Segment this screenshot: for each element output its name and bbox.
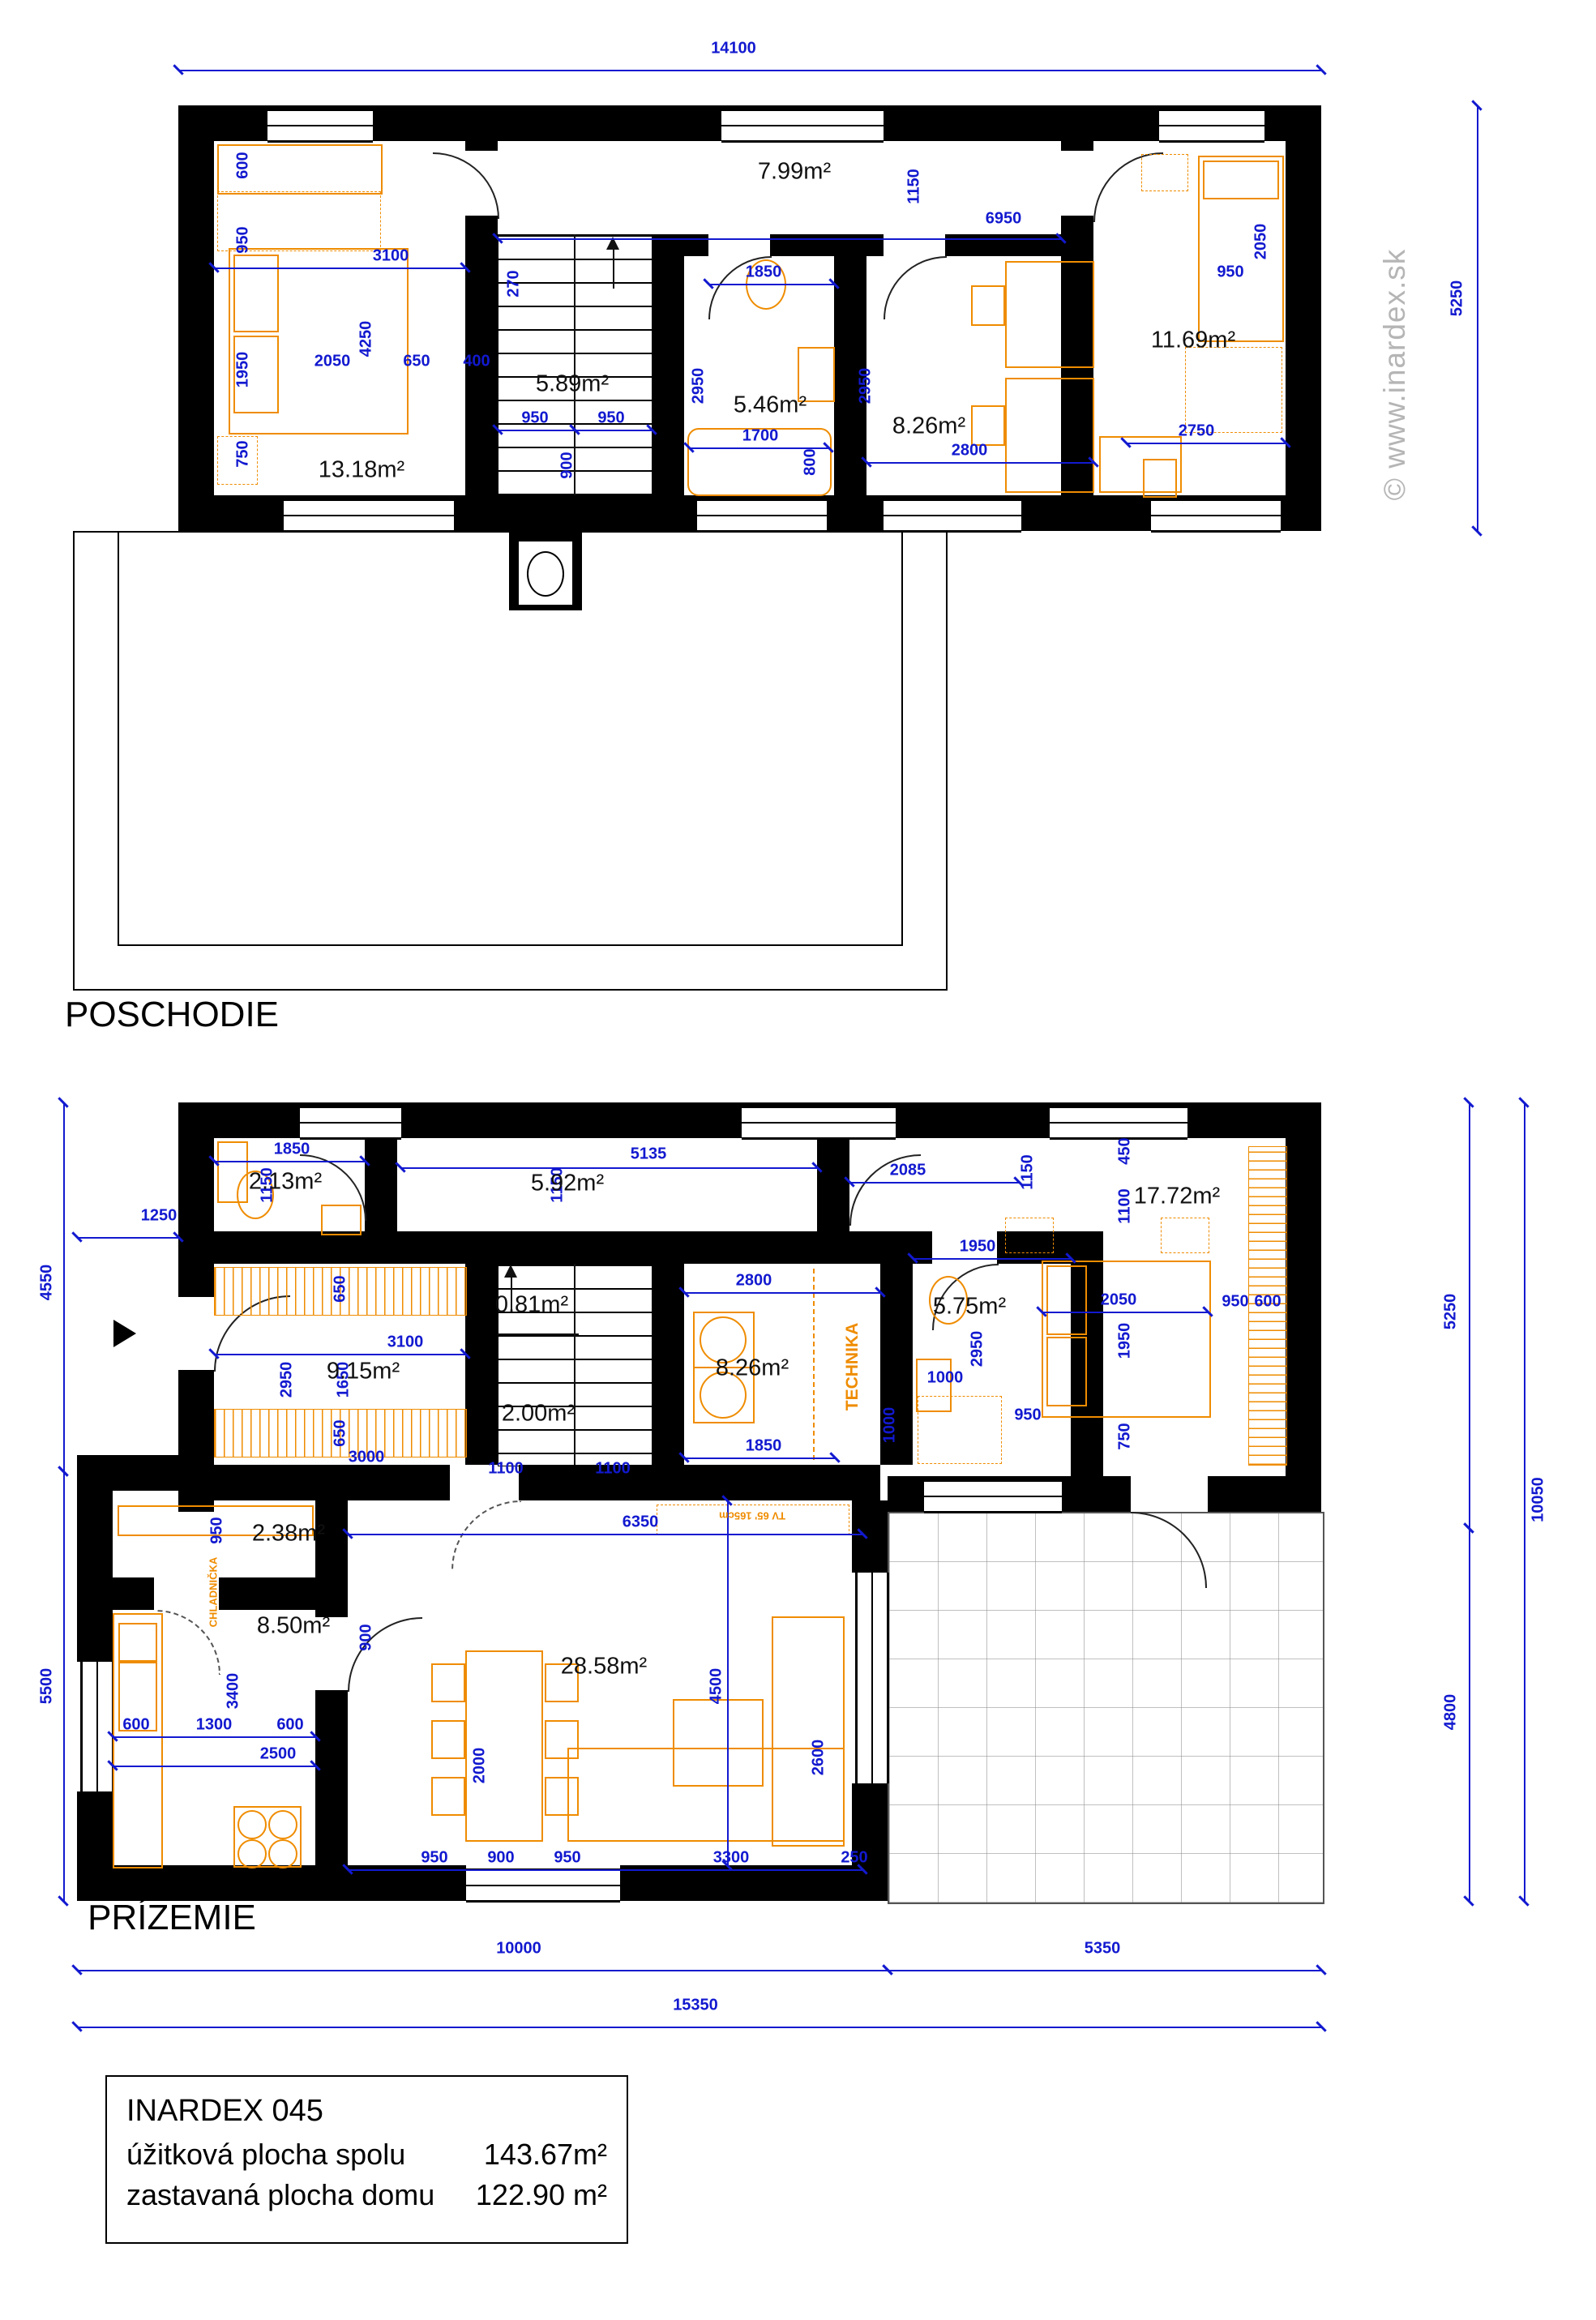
dimension-label: 600 (234, 152, 253, 178)
dimension-label: 900 (558, 452, 577, 478)
dimension-line (63, 1102, 65, 1471)
dimension-label: 950 (597, 409, 624, 428)
dimension-label: 1000 (881, 1407, 900, 1444)
wall (113, 1577, 154, 1610)
dimension-label: 1100 (488, 1460, 523, 1479)
furniture (673, 1699, 764, 1787)
window (742, 1106, 896, 1140)
room-area-label: 8.26m² (716, 1355, 789, 1382)
furniture (1143, 459, 1177, 498)
dimension-label: 6350 (623, 1513, 659, 1532)
dimension-label: 3100 (387, 1333, 424, 1352)
dimension-label: 1850 (746, 1437, 782, 1456)
dimension-label: 3300 (713, 1849, 750, 1868)
dimension-label: 1150 (1019, 1154, 1038, 1189)
dimension-line (1524, 1102, 1525, 1901)
dimension-line (684, 1457, 835, 1459)
furniture (431, 1777, 465, 1816)
furniture (465, 1650, 543, 1842)
room-area-label: 8.26m² (892, 413, 965, 440)
dimension-label: 600 (1254, 1293, 1281, 1312)
dimension-label: 950 (554, 1849, 580, 1868)
window (466, 1868, 620, 1903)
dimension-label: 950 (1222, 1293, 1248, 1312)
dimension-label: 2950 (278, 1362, 297, 1398)
furniture (431, 1720, 465, 1759)
dimension-label: 650 (403, 353, 430, 371)
wall (219, 1577, 315, 1610)
dimension-label: 4550 (38, 1265, 57, 1301)
fixture-circle (237, 1810, 267, 1839)
dimension-line (1469, 1528, 1470, 1901)
room-area-label: 5.46m² (734, 392, 807, 419)
wall (465, 1264, 498, 1465)
wall (519, 1465, 880, 1500)
dimension-label: 3100 (373, 247, 409, 266)
dimension-label: 2500 (260, 1745, 297, 1764)
dimension-line (63, 1471, 65, 1901)
dimension-label: 650 (332, 1275, 350, 1302)
dimension-line (214, 1354, 465, 1355)
dimension-label: 10050 (1530, 1477, 1548, 1522)
fixture-circle (268, 1839, 297, 1868)
wall (1061, 141, 1093, 151)
furniture (1005, 1218, 1054, 1253)
furniture (918, 1396, 1002, 1464)
usable-area-value: 143.67m² (484, 2134, 607, 2175)
window (884, 499, 1021, 533)
furniture (118, 1623, 157, 1662)
drawing-line (498, 1333, 579, 1335)
furniture (1203, 161, 1279, 199)
wall (620, 1865, 888, 1901)
dimension-label: 15350 (673, 1997, 718, 2015)
dimension-label: 270 (505, 270, 524, 297)
dimension-line (913, 1258, 1071, 1260)
dimension-line (498, 238, 1061, 240)
room-area-label: 28.58m² (561, 1654, 647, 1680)
wall (315, 1690, 348, 1865)
dimension-label: 3000 (349, 1449, 385, 1467)
floor-title: POSCHODIE (65, 995, 279, 1035)
dimension-line (113, 1766, 315, 1767)
dimension-label: 1100 (1116, 1188, 1135, 1223)
floor-title: PRÍZEMIE (88, 1898, 256, 1938)
wall (214, 1465, 450, 1500)
dimension-line (214, 268, 465, 269)
furniture (1141, 154, 1188, 191)
dimension-label: 1300 (196, 1716, 233, 1735)
dimension-line (1042, 1312, 1208, 1313)
dimension-label: 2950 (969, 1331, 987, 1368)
wall (178, 105, 214, 531)
dimension-label: 1950 (1116, 1323, 1135, 1359)
wall (365, 1138, 397, 1231)
project-name: INARDEX 045 (126, 2088, 607, 2134)
furniture (233, 255, 279, 332)
dimension-label: 4800 (1442, 1694, 1461, 1731)
dimension-line (400, 1167, 817, 1169)
wall (849, 1231, 913, 1264)
dimension-label: 900 (357, 1624, 376, 1650)
dimension-line (1469, 1102, 1470, 1528)
furniture (1046, 1337, 1087, 1406)
room-area-label: 5.92m² (531, 1171, 604, 1197)
wall (852, 1500, 888, 1573)
dimension-label: 2050 (1252, 224, 1271, 260)
dimension-label: 950 (521, 409, 548, 428)
room-area-label: 2.00m² (502, 1401, 575, 1428)
window (721, 109, 884, 143)
drawing-line (574, 1264, 576, 1465)
dimension-label: 1100 (595, 1460, 630, 1479)
wall (1286, 105, 1321, 531)
dimension-label: 600 (276, 1716, 303, 1735)
dimension-line (866, 462, 1093, 464)
wall (652, 1264, 684, 1465)
dimension-label: 900 (487, 1849, 514, 1868)
dimension-label: 2085 (890, 1162, 926, 1180)
dimension-line (178, 70, 1321, 71)
room-area-label: 5.75m² (933, 1294, 1006, 1321)
dimension-label: 2750 (1179, 422, 1215, 441)
dimension-line (214, 1161, 365, 1162)
room-area-label: 8.50m² (257, 1613, 330, 1640)
window (267, 109, 373, 143)
dimension-label: 1700 (742, 427, 779, 446)
dimension-line (708, 284, 834, 285)
dimension-line (77, 2027, 1321, 2028)
dimension-label: 5350 (1085, 1940, 1121, 1958)
wall (178, 1102, 214, 1297)
furniture (772, 1616, 845, 1847)
dimension-label: 2800 (736, 1272, 772, 1291)
window (924, 1479, 1062, 1513)
dimension-label: 4500 (708, 1668, 726, 1705)
furniture (1005, 378, 1094, 493)
dimension-label: 2050 (1101, 1291, 1137, 1310)
wall (77, 1865, 466, 1901)
dimension-line (849, 1182, 1019, 1184)
stairs-direction-icon (504, 1265, 517, 1278)
dimension-label: 950 (421, 1849, 447, 1868)
furniture (1005, 261, 1094, 368)
dimension-line (1126, 443, 1286, 444)
window (284, 499, 454, 533)
dimension-label: 600 (122, 1716, 149, 1735)
dimension-label: 5250 (1448, 280, 1467, 317)
dimension-label: 950 (234, 226, 253, 253)
furniture (971, 405, 1005, 446)
dimension-label: 6950 (986, 210, 1022, 229)
room-area-label: 2.13m² (249, 1169, 322, 1196)
builtup-area-label: zastavaná plocha domu (126, 2175, 434, 2215)
room-area-label: 13.18m² (319, 457, 404, 484)
dimension-label: 5135 (631, 1145, 667, 1164)
wall (77, 1455, 178, 1491)
wall (465, 141, 498, 151)
fixture-circle (268, 1810, 297, 1839)
dimension-label: 1150 (905, 169, 924, 203)
furniture (813, 1269, 815, 1460)
room-area-label: 9.15m² (327, 1359, 400, 1385)
window (1159, 109, 1264, 143)
furniture (217, 1141, 248, 1203)
dimension-label: 250 (841, 1849, 867, 1868)
dimension-label: 950 (208, 1517, 227, 1543)
dimension-line (727, 1500, 729, 1865)
dimension-label: 10000 (496, 1940, 541, 1958)
wall (852, 1783, 888, 1901)
dimension-label: 3400 (225, 1673, 243, 1710)
dimension-line (348, 1869, 862, 1871)
dimension-label: 2950 (690, 368, 708, 405)
furniture (321, 1205, 362, 1235)
furniture (1046, 1265, 1087, 1335)
dimension-label: 2050 (314, 353, 351, 371)
wall (1208, 1476, 1321, 1512)
annotation-tv: TV 65' 165cm (719, 1510, 785, 1522)
window (697, 499, 827, 533)
window (80, 1662, 114, 1791)
room-area-label: 0.81m² (495, 1292, 568, 1319)
dimension-label: 450 (1116, 1137, 1135, 1164)
dimension-label: 750 (234, 440, 253, 467)
window (1151, 499, 1281, 533)
furniture (1185, 347, 1282, 433)
dimension-label: 1250 (141, 1207, 178, 1226)
room-area-label: 7.99m² (758, 159, 831, 186)
builtup-area-value: 122.90 m² (476, 2175, 607, 2215)
wall (178, 1370, 214, 1512)
chimney (527, 551, 564, 597)
dimension-line (498, 430, 575, 431)
dimension-line (77, 1237, 178, 1239)
dimension-line (1477, 105, 1478, 531)
fixture-circle (237, 1839, 267, 1868)
dimension-label: 400 (463, 353, 490, 371)
annotation-technika: TECHNIKA (843, 1323, 862, 1411)
dimension-label: 1850 (746, 263, 782, 282)
window (300, 1106, 401, 1140)
dimension-label: 2600 (810, 1740, 828, 1776)
dimension-label: 2000 (471, 1748, 490, 1784)
title-block: INARDEX 045 úžitková plocha spolu 143.67… (105, 2075, 628, 2244)
wall (817, 1138, 849, 1264)
dimension-label: 2800 (952, 442, 988, 460)
dimension-line (575, 430, 652, 431)
dimension-line (77, 1970, 888, 1971)
room-area-label: 2.38m² (252, 1521, 325, 1547)
dimension-line (113, 1736, 315, 1738)
room-area-label: 11.69m² (1151, 327, 1235, 354)
dimension-label: 950 (1014, 1406, 1041, 1425)
floorplan-canvas: © www.inardex.sk KRB INARDEX 045 úžitkov… (0, 0, 1596, 2320)
dimension-label: 2950 (857, 368, 875, 405)
dimension-label: 750 (1116, 1423, 1135, 1449)
drawing-line (613, 248, 614, 289)
terrace (888, 1512, 1324, 1904)
wall (214, 1231, 817, 1264)
room-area-label: 5.89m² (536, 371, 609, 398)
furniture (1161, 1218, 1209, 1253)
dimension-label: 14100 (711, 40, 756, 58)
dimension-label: 5250 (1442, 1294, 1461, 1330)
dimension-label: 800 (802, 448, 820, 475)
dimension-label: 650 (332, 1419, 350, 1446)
dimension-line (888, 1970, 1321, 1971)
window (855, 1573, 889, 1783)
wall (1286, 1102, 1321, 1512)
furniture (971, 285, 1005, 326)
dimension-line (684, 1292, 880, 1294)
dimension-label: 1950 (234, 352, 253, 388)
dimension-label: 5500 (38, 1668, 57, 1705)
dimension-label: 1950 (960, 1238, 996, 1256)
dimension-label: 4250 (357, 321, 376, 357)
usable-area-label: úžitková plocha spolu (126, 2134, 405, 2175)
wall (315, 1500, 348, 1617)
window (1050, 1106, 1187, 1140)
dimension-line (348, 1534, 862, 1535)
dimension-label: 1850 (274, 1141, 310, 1159)
entry-arrow-icon (113, 1320, 136, 1347)
wall (652, 234, 684, 495)
furniture (431, 1663, 465, 1702)
room-area-label: 17.72m² (1134, 1184, 1220, 1210)
dimension-label: 950 (1217, 263, 1243, 282)
dimension-label: 1000 (927, 1369, 964, 1388)
watermark-text: © www.inardex.sk (1378, 148, 1410, 601)
annotation-chladnicka: CHLADNIČKA (208, 1557, 220, 1628)
